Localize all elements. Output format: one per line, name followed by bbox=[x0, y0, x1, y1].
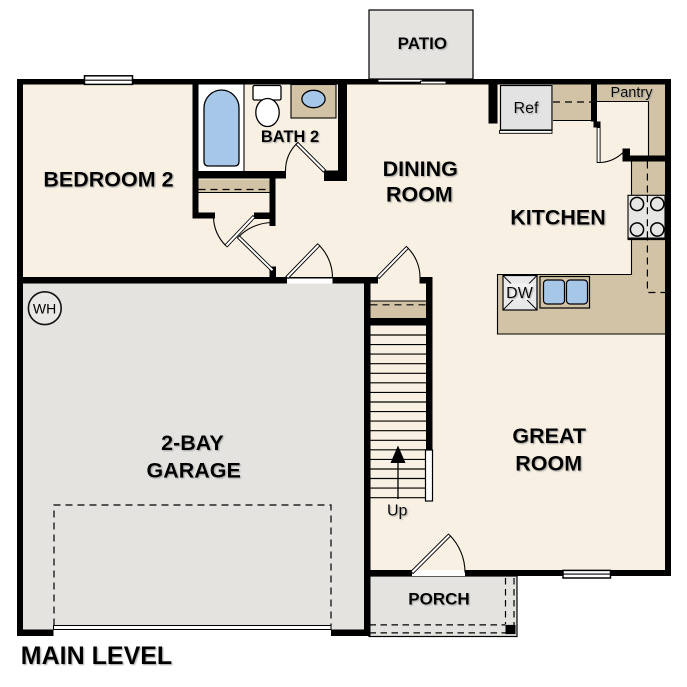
svg-text:GARAGE: GARAGE bbox=[147, 459, 241, 483]
svg-text:DINING: DINING bbox=[383, 157, 458, 181]
svg-text:PATIO: PATIO bbox=[398, 34, 447, 53]
svg-text:WH: WH bbox=[33, 300, 56, 316]
svg-text:BATH 2: BATH 2 bbox=[261, 128, 319, 146]
svg-text:Pantry: Pantry bbox=[611, 85, 654, 101]
svg-text:GREAT: GREAT bbox=[512, 424, 586, 448]
svg-text:KITCHEN: KITCHEN bbox=[510, 206, 606, 230]
svg-text:MAIN LEVEL: MAIN LEVEL bbox=[21, 642, 172, 670]
svg-text:PORCH: PORCH bbox=[408, 590, 469, 609]
svg-text:BEDROOM 2: BEDROOM 2 bbox=[43, 168, 173, 192]
svg-text:Ref: Ref bbox=[514, 100, 539, 117]
svg-text:ROOM: ROOM bbox=[386, 183, 453, 207]
svg-text:2-BAY: 2-BAY bbox=[161, 431, 224, 455]
svg-text:DW: DW bbox=[506, 285, 534, 302]
svg-text:ROOM: ROOM bbox=[515, 452, 582, 476]
svg-text:Up: Up bbox=[387, 503, 408, 520]
